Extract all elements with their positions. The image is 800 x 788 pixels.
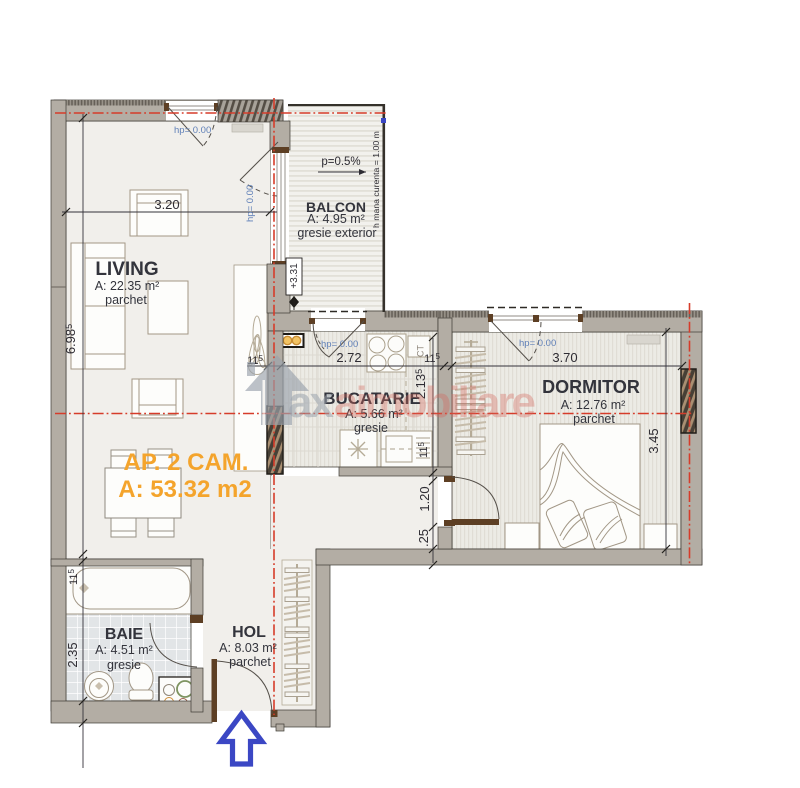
svg-text:A: 8.03 m²: A: 8.03 m² (219, 641, 277, 655)
svg-text:gresie exterior: gresie exterior (297, 226, 376, 240)
svg-text:AP. 2 CAM.: AP. 2 CAM. (124, 449, 249, 476)
svg-text:A: 4.95 m²: A: 4.95 m² (307, 212, 365, 226)
svg-text:p=0.5%: p=0.5% (321, 156, 360, 168)
svg-text:ax: ax (288, 378, 335, 427)
svg-text:hp= 0.00: hp= 0.00 (174, 125, 211, 136)
svg-text:A: 4.51 m²: A: 4.51 m² (95, 643, 153, 657)
svg-text:hp= 0.00: hp= 0.00 (519, 338, 556, 349)
svg-text:A: 53.32 m2: A: 53.32 m2 (118, 476, 251, 503)
svg-text:A: 22.35 m²: A: 22.35 m² (95, 279, 160, 293)
svg-text:3.70: 3.70 (552, 350, 577, 365)
svg-text:aimobiliare: aimobiliare (334, 378, 536, 427)
svg-text:LIVING: LIVING (95, 259, 158, 280)
svg-text:.25: .25 (416, 529, 431, 547)
svg-text:gresie: gresie (107, 658, 141, 672)
svg-text:3.20: 3.20 (154, 197, 179, 212)
svg-text:h mana curenta = 1.00 m: h mana curenta = 1.00 m (371, 131, 381, 228)
svg-text:hp= 0.00: hp= 0.00 (245, 185, 256, 222)
svg-text:parchet: parchet (573, 412, 615, 426)
svg-text:DORMITOR: DORMITOR (542, 377, 640, 397)
svg-text:A: 12.76 m²: A: 12.76 m² (561, 398, 626, 412)
svg-text:3.45: 3.45 (646, 428, 661, 453)
svg-text:BAIE: BAIE (105, 626, 144, 643)
svg-text:HOL: HOL (232, 624, 266, 641)
svg-text:hp= 0.00: hp= 0.00 (321, 339, 358, 350)
svg-text:2.35: 2.35 (65, 642, 80, 667)
svg-text:parchet: parchet (229, 655, 271, 669)
svg-text:1.20: 1.20 (417, 486, 432, 511)
svg-text:2.72: 2.72 (336, 350, 361, 365)
svg-text:parchet: parchet (105, 293, 147, 307)
svg-text:+3.31: +3.31 (289, 263, 300, 289)
